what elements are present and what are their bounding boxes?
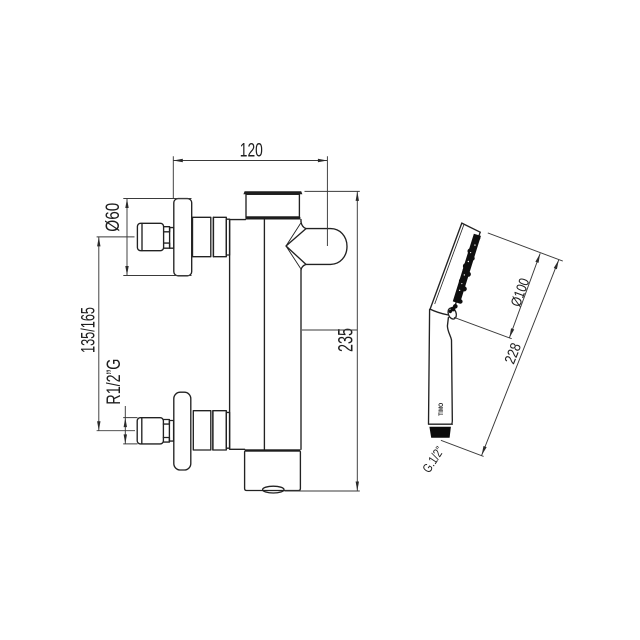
svg-text:TIMO: TIMO [438,403,445,416]
svg-text:135/165: 135/165 [79,307,100,353]
svg-text:Ø60: Ø60 [103,203,124,232]
svg-text:R1/2”G: R1/2”G [104,359,125,405]
svg-text:235: 235 [334,328,357,352]
svg-text:120: 120 [240,141,263,162]
